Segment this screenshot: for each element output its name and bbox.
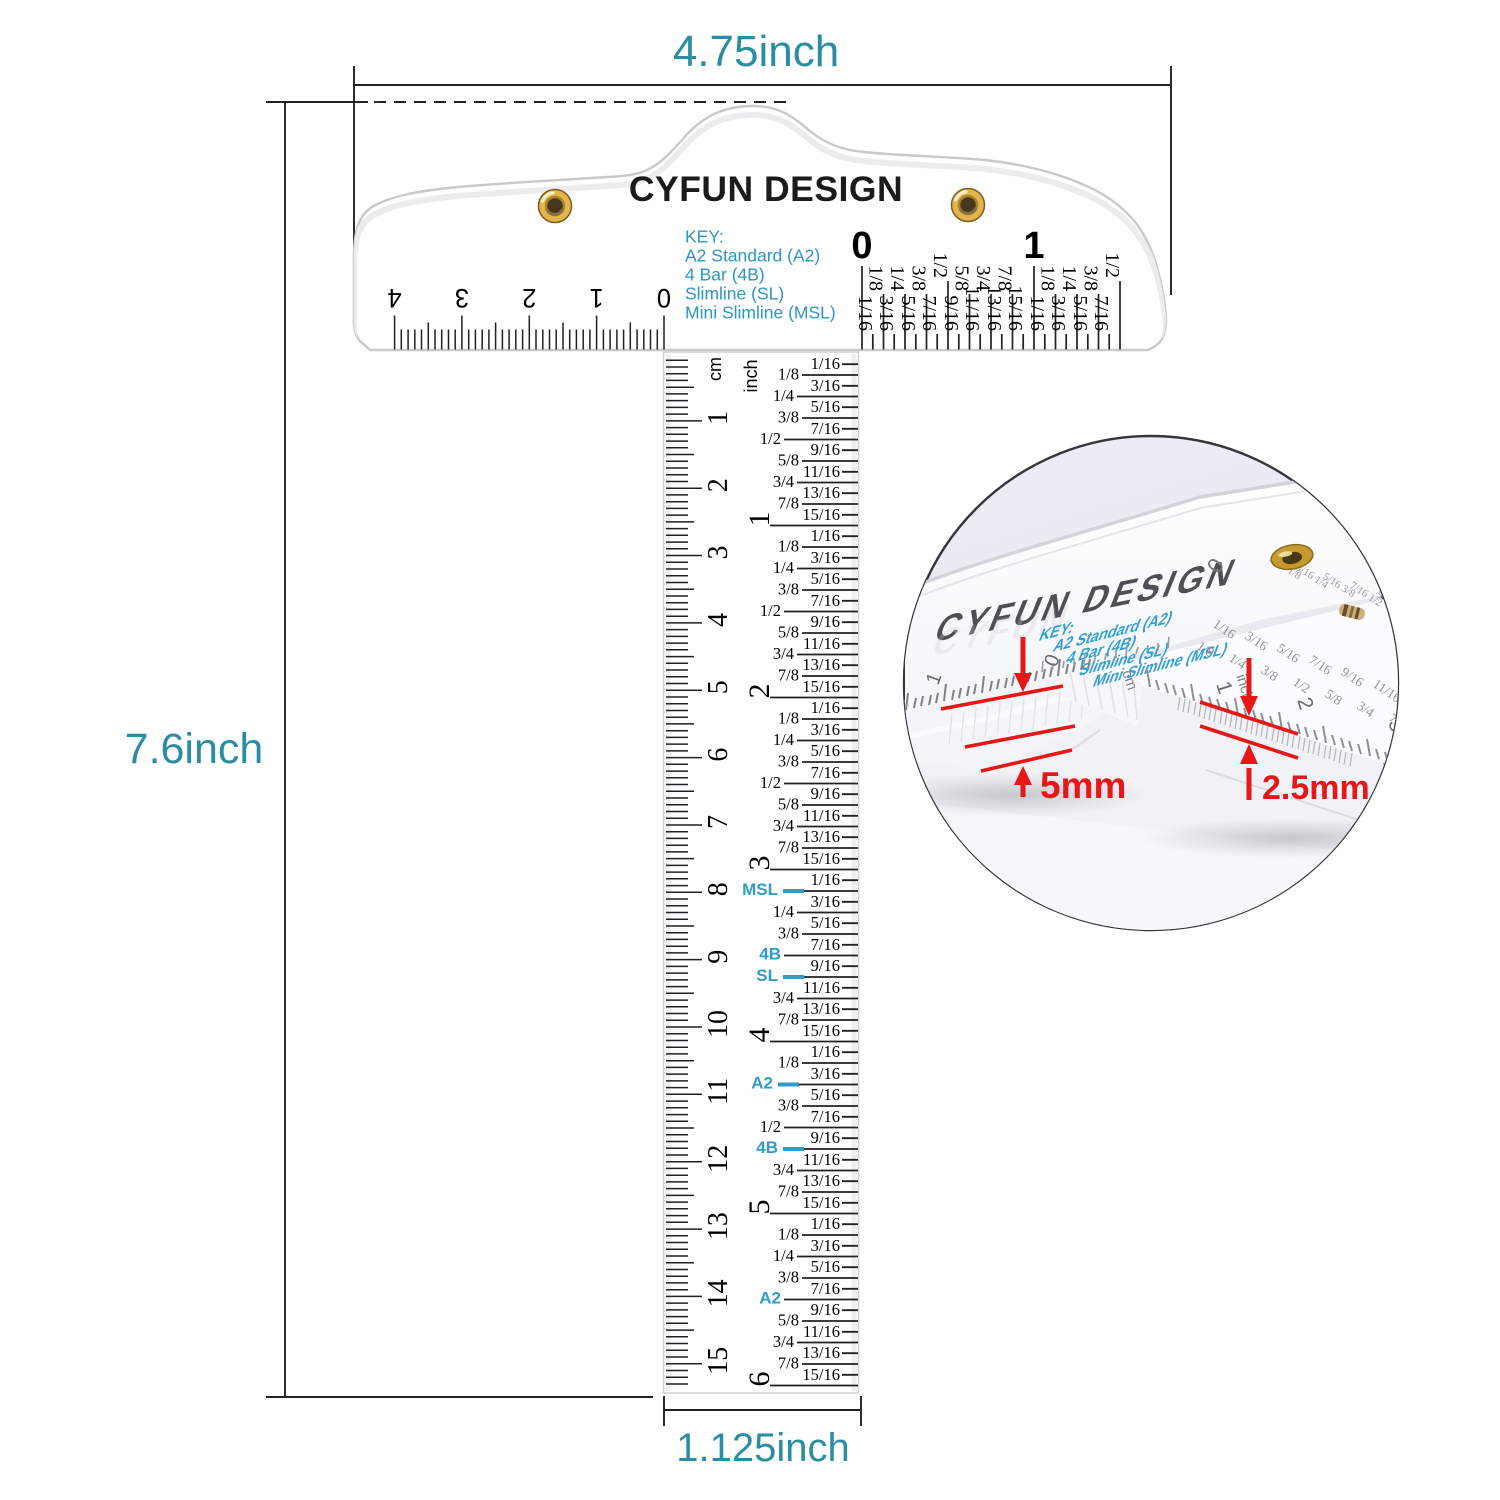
svg-text:9/16: 9/16: [811, 1300, 840, 1319]
svg-text:5/16: 5/16: [811, 1085, 840, 1104]
svg-text:1: 1: [743, 512, 776, 527]
svg-text:7/8: 7/8: [778, 1182, 799, 1201]
svg-text:2.5mm: 2.5mm: [1262, 769, 1370, 807]
svg-text:15/16: 15/16: [802, 677, 840, 696]
svg-text:5: 5: [743, 1200, 776, 1215]
svg-text:7/16: 7/16: [811, 763, 840, 782]
svg-text:13/16: 13/16: [802, 1343, 840, 1362]
svg-text:11/16: 11/16: [803, 462, 840, 481]
svg-text:3: 3: [455, 283, 469, 314]
svg-text:1/4: 1/4: [886, 265, 908, 291]
svg-text:1/2: 1/2: [929, 252, 951, 278]
svg-text:Mini Slimline (MSL): Mini Slimline (MSL): [685, 303, 836, 323]
svg-text:7.6inch: 7.6inch: [125, 725, 264, 773]
svg-text:7/8: 7/8: [778, 1354, 799, 1373]
svg-text:13/16: 13/16: [802, 655, 840, 674]
svg-text:3/4: 3/4: [773, 816, 794, 835]
svg-text:5mm: 5mm: [1040, 765, 1126, 806]
svg-text:15/16: 15/16: [802, 1021, 840, 1040]
svg-text:inch: inch: [741, 359, 761, 392]
svg-text:CYFUN DESIGN: CYFUN DESIGN: [629, 169, 903, 209]
svg-text:15/16: 15/16: [802, 1365, 840, 1384]
svg-text:A2: A2: [759, 1289, 781, 1308]
svg-text:1/2: 1/2: [760, 773, 781, 792]
svg-text:1/16: 1/16: [811, 870, 840, 889]
svg-text:15/16: 15/16: [802, 1193, 840, 1212]
svg-text:1: 1: [703, 411, 734, 425]
svg-text:3/16: 3/16: [811, 548, 840, 567]
svg-text:5/16: 5/16: [811, 913, 840, 932]
svg-text:5/16: 5/16: [811, 741, 840, 760]
svg-text:1/16: 1/16: [811, 698, 840, 717]
svg-text:5: 5: [703, 680, 734, 694]
svg-text:5/16: 5/16: [811, 569, 840, 588]
svg-text:1/8: 1/8: [778, 1225, 799, 1244]
svg-text:1/8: 1/8: [778, 537, 799, 556]
svg-text:5/8: 5/8: [778, 795, 799, 814]
svg-text:3/8: 3/8: [778, 1096, 799, 1115]
svg-text:1/4: 1/4: [773, 558, 794, 577]
svg-text:1/4: 1/4: [773, 730, 794, 749]
svg-text:9/16: 9/16: [811, 612, 840, 631]
svg-text:9/16: 9/16: [811, 440, 840, 459]
svg-text:1/8: 1/8: [865, 265, 887, 291]
svg-text:13/16: 13/16: [802, 827, 840, 846]
svg-text:3/8: 3/8: [908, 265, 930, 291]
svg-text:1/4: 1/4: [1058, 265, 1080, 291]
svg-text:4B: 4B: [756, 1138, 778, 1157]
svg-text:SL: SL: [756, 966, 778, 985]
svg-text:5/8: 5/8: [778, 451, 799, 470]
svg-text:5/16: 5/16: [897, 295, 919, 331]
svg-text:1/8: 1/8: [1037, 265, 1059, 291]
svg-text:7/16: 7/16: [811, 935, 840, 954]
svg-text:9: 9: [703, 950, 734, 964]
svg-text:9/16: 9/16: [940, 295, 962, 331]
svg-text:3: 3: [703, 546, 734, 560]
svg-text:A2: A2: [751, 1074, 773, 1093]
svg-text:1/8: 1/8: [778, 709, 799, 728]
svg-text:1/2: 1/2: [1101, 252, 1123, 278]
svg-text:4: 4: [743, 1028, 776, 1043]
svg-text:3/8: 3/8: [778, 752, 799, 771]
svg-text:15/16: 15/16: [1004, 285, 1026, 331]
svg-text:9/16: 9/16: [811, 1128, 840, 1147]
svg-text:10: 10: [703, 1010, 734, 1038]
svg-text:1/8: 1/8: [778, 1053, 799, 1072]
svg-text:7/8: 7/8: [778, 666, 799, 685]
svg-text:12: 12: [703, 1145, 734, 1173]
svg-text:1/16: 1/16: [811, 526, 840, 545]
svg-text:7/16: 7/16: [811, 1279, 840, 1298]
svg-text:3/16: 3/16: [1047, 295, 1069, 331]
svg-text:7: 7: [703, 815, 734, 829]
svg-text:3/8: 3/8: [778, 924, 799, 943]
svg-text:14: 14: [703, 1279, 734, 1307]
svg-text:3: 3: [743, 856, 776, 871]
svg-text:1: 1: [590, 283, 604, 314]
svg-text:4.75inch: 4.75inch: [673, 27, 839, 76]
svg-text:7/8: 7/8: [778, 838, 799, 857]
svg-text:3/4: 3/4: [773, 1160, 794, 1179]
svg-text:5/16: 5/16: [811, 1257, 840, 1276]
svg-text:13/16: 13/16: [802, 483, 840, 502]
svg-text:11/16: 11/16: [803, 1150, 840, 1169]
svg-text:5/8: 5/8: [778, 1311, 799, 1330]
svg-text:1/16: 1/16: [854, 295, 876, 331]
svg-text:3/8: 3/8: [778, 580, 799, 599]
svg-text:7/16: 7/16: [918, 295, 940, 331]
svg-text:4 Bar (4B): 4 Bar (4B): [685, 265, 765, 285]
svg-text:3/16: 3/16: [811, 376, 840, 395]
svg-text:2: 2: [743, 684, 776, 699]
svg-text:5/16: 5/16: [1069, 295, 1091, 331]
svg-text:3/16: 3/16: [811, 1236, 840, 1255]
svg-text:3/4: 3/4: [773, 472, 794, 491]
svg-text:11/16: 11/16: [803, 806, 840, 825]
svg-text:11/16: 11/16: [803, 1322, 840, 1341]
svg-text:7/16: 7/16: [1090, 295, 1112, 331]
svg-text:1/2: 1/2: [760, 601, 781, 620]
svg-text:13: 13: [703, 1212, 734, 1240]
svg-text:15/16: 15/16: [802, 849, 840, 868]
svg-text:15/16: 15/16: [802, 505, 840, 524]
svg-text:7/8: 7/8: [778, 494, 799, 513]
svg-text:9/16: 9/16: [811, 956, 840, 975]
svg-text:11: 11: [703, 1078, 734, 1105]
svg-text:13/16: 13/16: [802, 1171, 840, 1190]
svg-text:MSL: MSL: [742, 880, 778, 899]
svg-text:15: 15: [703, 1347, 734, 1375]
svg-text:A2 Standard (A2): A2 Standard (A2): [685, 246, 820, 266]
svg-text:4: 4: [388, 283, 402, 314]
svg-text:6: 6: [703, 748, 734, 762]
svg-text:1/2: 1/2: [760, 429, 781, 448]
svg-text:1/16: 1/16: [811, 1214, 840, 1233]
svg-text:1/16: 1/16: [811, 354, 840, 373]
svg-text:7/16: 7/16: [811, 419, 840, 438]
svg-text:7/16: 7/16: [811, 591, 840, 610]
svg-text:3/16: 3/16: [811, 720, 840, 739]
svg-text:3/8: 3/8: [1080, 265, 1102, 291]
svg-text:3/4: 3/4: [773, 1332, 794, 1351]
svg-text:3/16: 3/16: [811, 892, 840, 911]
svg-text:7/8: 7/8: [778, 1010, 799, 1029]
svg-text:7/16: 7/16: [811, 1107, 840, 1126]
svg-text:4B: 4B: [759, 945, 781, 964]
svg-text:3/16: 3/16: [811, 1064, 840, 1083]
svg-text:13/16: 13/16: [802, 999, 840, 1018]
svg-text:0: 0: [657, 283, 671, 314]
svg-text:1/4: 1/4: [773, 1246, 794, 1265]
svg-text:5/16: 5/16: [811, 397, 840, 416]
svg-text:1/2: 1/2: [760, 1117, 781, 1136]
svg-text:Slimline (SL): Slimline (SL): [685, 284, 784, 304]
svg-text:11/16: 11/16: [803, 634, 840, 653]
svg-text:3/4: 3/4: [773, 988, 794, 1007]
svg-text:cm: cm: [705, 357, 725, 381]
svg-text:3/16: 3/16: [875, 295, 897, 331]
svg-text:2: 2: [703, 478, 734, 492]
svg-text:1: 1: [1023, 225, 1044, 267]
svg-text:11/16: 11/16: [961, 286, 983, 331]
svg-text:1/16: 1/16: [811, 1042, 840, 1061]
svg-text:6: 6: [743, 1372, 776, 1387]
svg-text:9/16: 9/16: [811, 784, 840, 803]
svg-text:0: 0: [851, 225, 872, 267]
svg-text:8: 8: [703, 882, 734, 896]
svg-text:2: 2: [522, 283, 536, 314]
svg-text:3/8: 3/8: [778, 408, 799, 427]
svg-text:3/8: 3/8: [778, 1268, 799, 1287]
svg-text:1/4: 1/4: [773, 902, 794, 921]
svg-text:1/4: 1/4: [773, 386, 794, 405]
svg-text:1/16: 1/16: [1026, 295, 1048, 331]
svg-text:3/4: 3/4: [773, 644, 794, 663]
svg-text:1.125inch: 1.125inch: [676, 1426, 849, 1470]
svg-text:13/16: 13/16: [983, 285, 1005, 331]
svg-text:4: 4: [703, 613, 734, 627]
svg-text:1/8: 1/8: [778, 365, 799, 384]
svg-text:KEY:: KEY:: [685, 227, 724, 247]
svg-text:11/16: 11/16: [803, 978, 840, 997]
svg-text:5/8: 5/8: [778, 623, 799, 642]
